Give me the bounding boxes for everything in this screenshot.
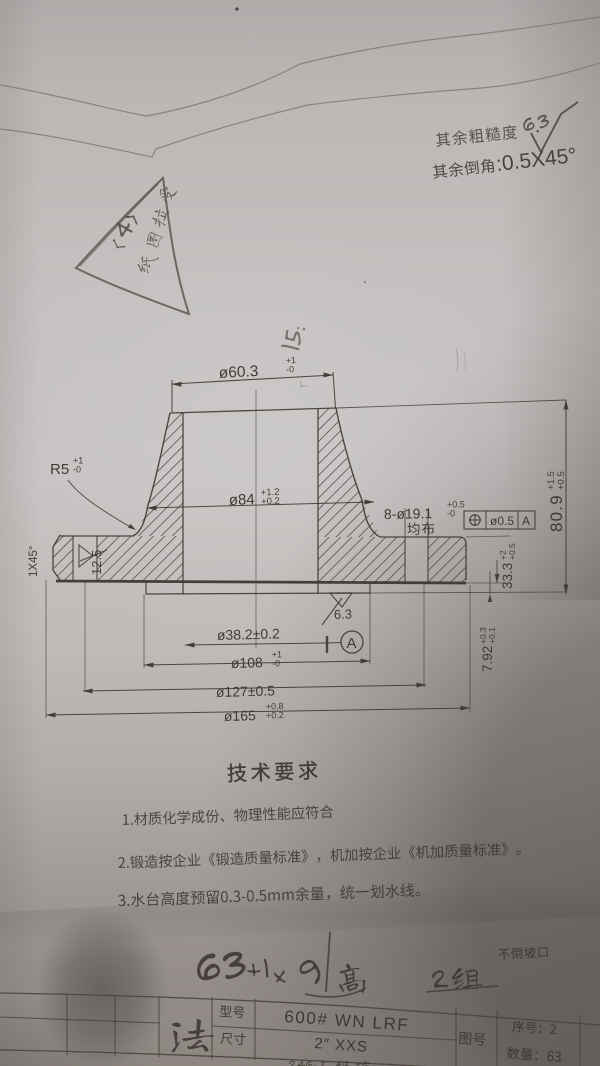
svg-text:7.92: 7.92 bbox=[480, 646, 495, 672]
svg-text:A: A bbox=[347, 635, 357, 652]
svg-text:ø108: ø108 bbox=[231, 654, 264, 671]
svg-text:6.3: 6.3 bbox=[334, 606, 353, 622]
svg-text:8-ø19.1: 8-ø19.1 bbox=[384, 505, 433, 522]
svg-text:ø165: ø165 bbox=[224, 707, 257, 724]
svg-text:12.5: 12.5 bbox=[89, 550, 104, 575]
svg-text:33.3: 33.3 bbox=[500, 563, 515, 589]
svg-text:+0.2: +0.2 bbox=[261, 496, 280, 508]
svg-text:ø84: ø84 bbox=[229, 491, 255, 509]
svg-text:ø0.5: ø0.5 bbox=[490, 514, 514, 528]
svg-text:ø127±0.5: ø127±0.5 bbox=[216, 682, 276, 700]
svg-text:A: A bbox=[522, 514, 530, 528]
svg-text:R5: R5 bbox=[50, 461, 69, 478]
svg-text:-0: -0 bbox=[286, 364, 295, 374]
svg-text:+0.5: +0.5 bbox=[507, 543, 517, 560]
svg-text:80.9: 80.9 bbox=[547, 494, 566, 532]
svg-text:+0.1: +0.1 bbox=[487, 627, 497, 644]
svg-text:-0: -0 bbox=[272, 658, 280, 668]
svg-text:+0.2: +0.2 bbox=[266, 710, 284, 720]
svg-text:ø38.2±0.2: ø38.2±0.2 bbox=[217, 625, 281, 643]
svg-text:-0: -0 bbox=[447, 509, 455, 519]
svg-text:1X45°: 1X45° bbox=[28, 546, 40, 577]
svg-text:-0: -0 bbox=[73, 465, 81, 475]
svg-text:+0.5: +0.5 bbox=[556, 471, 567, 490]
